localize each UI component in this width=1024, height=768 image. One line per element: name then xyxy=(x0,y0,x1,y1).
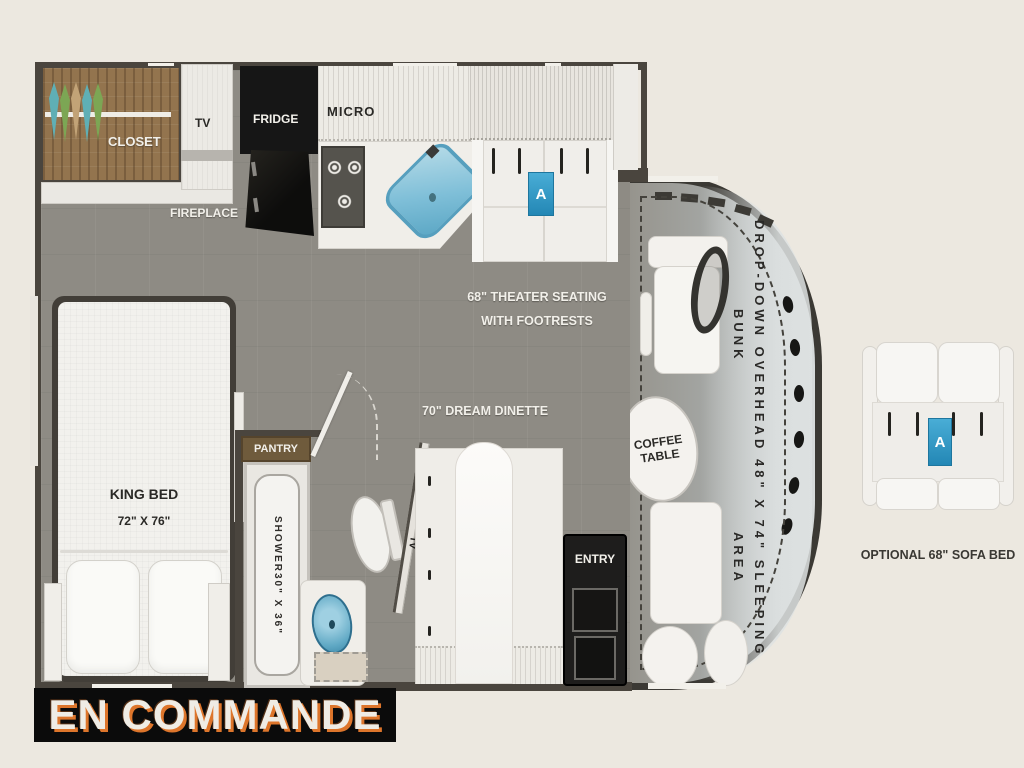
wall-right-stub xyxy=(641,62,647,178)
passenger-cushion xyxy=(704,620,748,686)
dinette-label-text: 70" DREAM DINETTE xyxy=(422,404,548,418)
driver-armrest xyxy=(640,292,652,356)
closet xyxy=(41,66,181,182)
nightstand xyxy=(44,583,62,681)
passenger-seat xyxy=(650,502,722,624)
closet-label: CLOSET xyxy=(108,134,161,149)
tv-shelf xyxy=(181,150,233,161)
sofa-option-label: OPTIONAL 68" SOFA BED xyxy=(852,548,1024,562)
king-bed-label-text: KING BED xyxy=(110,486,178,502)
shower-label-line1: SHOWER xyxy=(270,516,284,573)
entry-label-text: ENTRY xyxy=(575,552,615,566)
fridge-label: FRIDGE xyxy=(253,112,298,126)
theater-slide-wall xyxy=(470,66,618,140)
sofa-tag-a-text: A xyxy=(935,434,946,451)
king-bed-label: KING BED xyxy=(84,486,204,502)
status-banner: EN COMMANDE xyxy=(34,688,396,742)
wall-notch xyxy=(648,683,726,689)
bunk-label: DROP-DOWN OVERHEAD BUNK48" X 74" SLEEPIN… xyxy=(726,218,772,662)
theater-tag-a: A xyxy=(528,172,554,216)
theater-label-line2: WITH FOOTRESTS xyxy=(462,314,612,328)
pantry-sign: PANTRY xyxy=(241,436,311,462)
tv-label: TV xyxy=(195,116,210,130)
status-banner-text: EN COMMANDE xyxy=(49,691,382,739)
burner-icon xyxy=(327,160,342,175)
sofa-seam xyxy=(980,412,983,436)
burner-icon xyxy=(347,160,362,175)
sofa-seat-cushion xyxy=(938,478,1000,510)
micro-label: MICRO xyxy=(327,104,375,119)
bath-sink-drain-icon xyxy=(329,620,335,629)
sofa-backrest-cushion xyxy=(876,342,938,404)
stove-icon xyxy=(321,146,365,228)
theater-label2-text: WITH FOOTRESTS xyxy=(481,314,593,328)
king-bed-size: 72" X 76" xyxy=(84,514,204,528)
bunk-label-line1: DROP-DOWN OVERHEAD BUNK xyxy=(728,218,770,454)
bath-mat xyxy=(314,652,368,682)
shower-label: SHOWER30" X 36" xyxy=(258,482,296,668)
fireplace-label: FIREPLACE xyxy=(170,206,238,220)
theater-label1-text: 68" THEATER SEATING xyxy=(467,290,607,304)
bench-seam xyxy=(428,626,431,636)
pantry-label: PANTRY xyxy=(254,443,298,455)
theater-end-panel xyxy=(613,64,638,170)
bench-seam xyxy=(428,528,431,538)
shower-label-line2: 30" X 36" xyxy=(270,573,284,635)
seat-seam xyxy=(518,148,521,174)
sofa-tag-a: A xyxy=(928,418,952,466)
sink-drain-icon xyxy=(429,193,436,202)
entry-step xyxy=(572,588,618,632)
cab-slide-notch xyxy=(646,176,718,182)
theater-tag-a-text: A xyxy=(536,186,547,203)
entry-step xyxy=(574,636,616,680)
bench-seam xyxy=(428,570,431,580)
sofa-backrest-cushion xyxy=(938,342,1000,404)
sofa-option: A xyxy=(862,338,1014,512)
nightstand xyxy=(208,583,230,681)
seat-seam xyxy=(492,148,495,174)
entry-label: ENTRY xyxy=(563,552,627,566)
seat-seam xyxy=(586,148,589,174)
theater-armrest xyxy=(472,140,484,262)
burner-icon xyxy=(337,194,352,209)
dinette-table xyxy=(455,442,513,684)
bed-fold-line xyxy=(60,550,228,553)
seat-seam xyxy=(560,148,563,174)
sofa-option-label-text: OPTIONAL 68" SOFA BED xyxy=(861,548,1016,562)
fridge xyxy=(240,66,318,154)
dinette-label: 70" DREAM DINETTE xyxy=(424,404,546,418)
rv-floorplan: DROP-DOWN OVERHEAD BUNK48" X 74" SLEEPIN… xyxy=(0,0,1024,768)
theater-label-line1: 68" THEATER SEATING xyxy=(462,290,612,304)
bath-wall-left xyxy=(235,432,243,682)
slide-marker xyxy=(30,296,38,466)
window-dot-icon xyxy=(794,385,804,402)
king-bed-size-text: 72" X 76" xyxy=(118,514,171,528)
passenger-ottoman xyxy=(642,626,698,688)
sofa-seam xyxy=(916,412,919,436)
pillow xyxy=(66,560,140,674)
sofa-seam xyxy=(952,412,955,436)
sofa-seam xyxy=(888,412,891,436)
sofa-seat-cushion xyxy=(876,478,938,510)
bench-seam xyxy=(428,476,431,486)
